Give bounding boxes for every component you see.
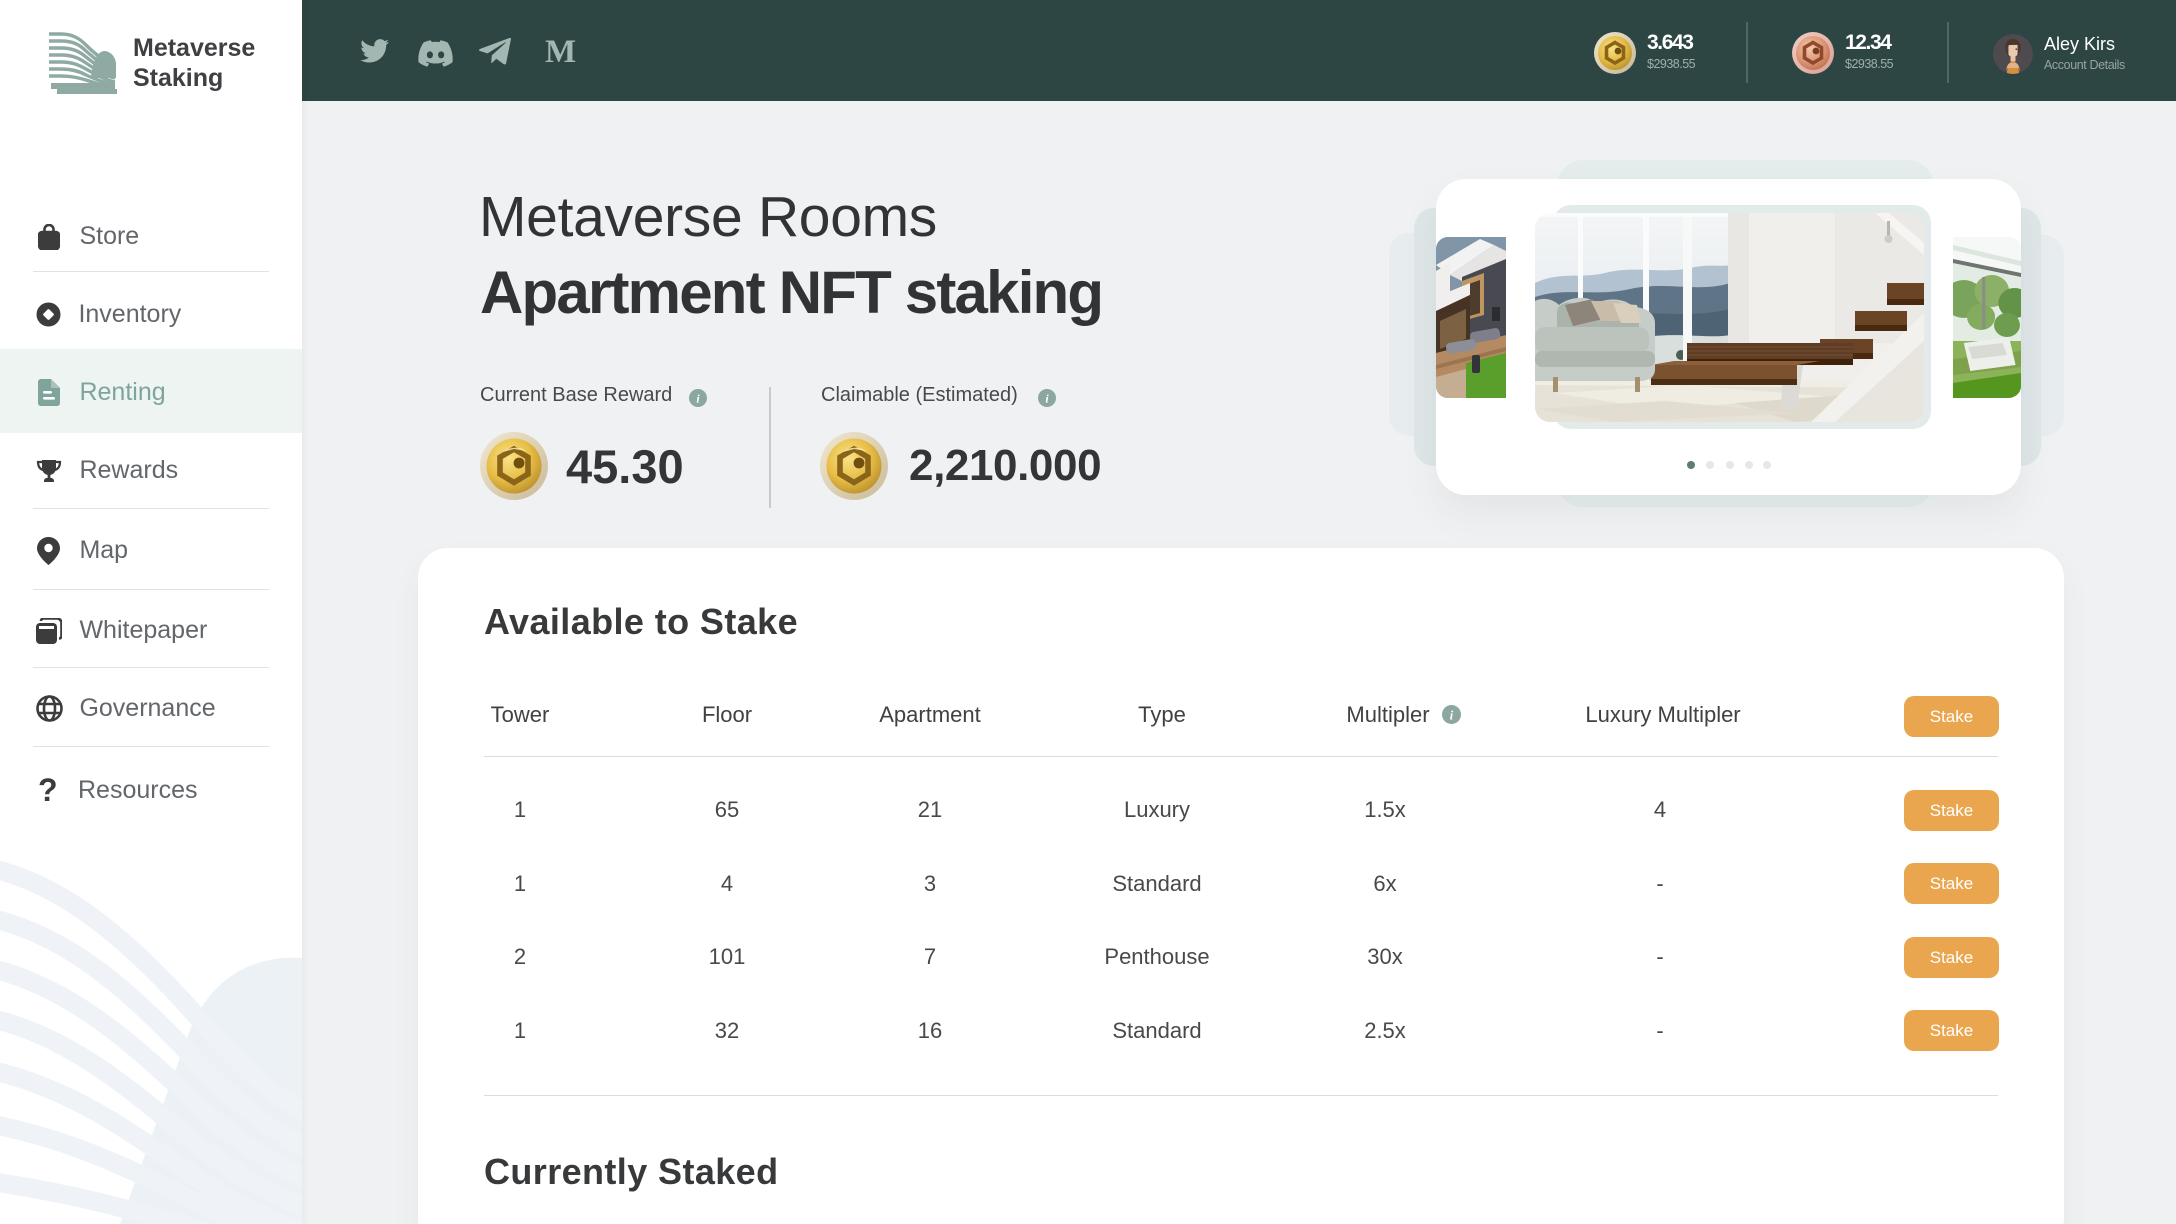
svg-text:i: i [1450,708,1454,722]
